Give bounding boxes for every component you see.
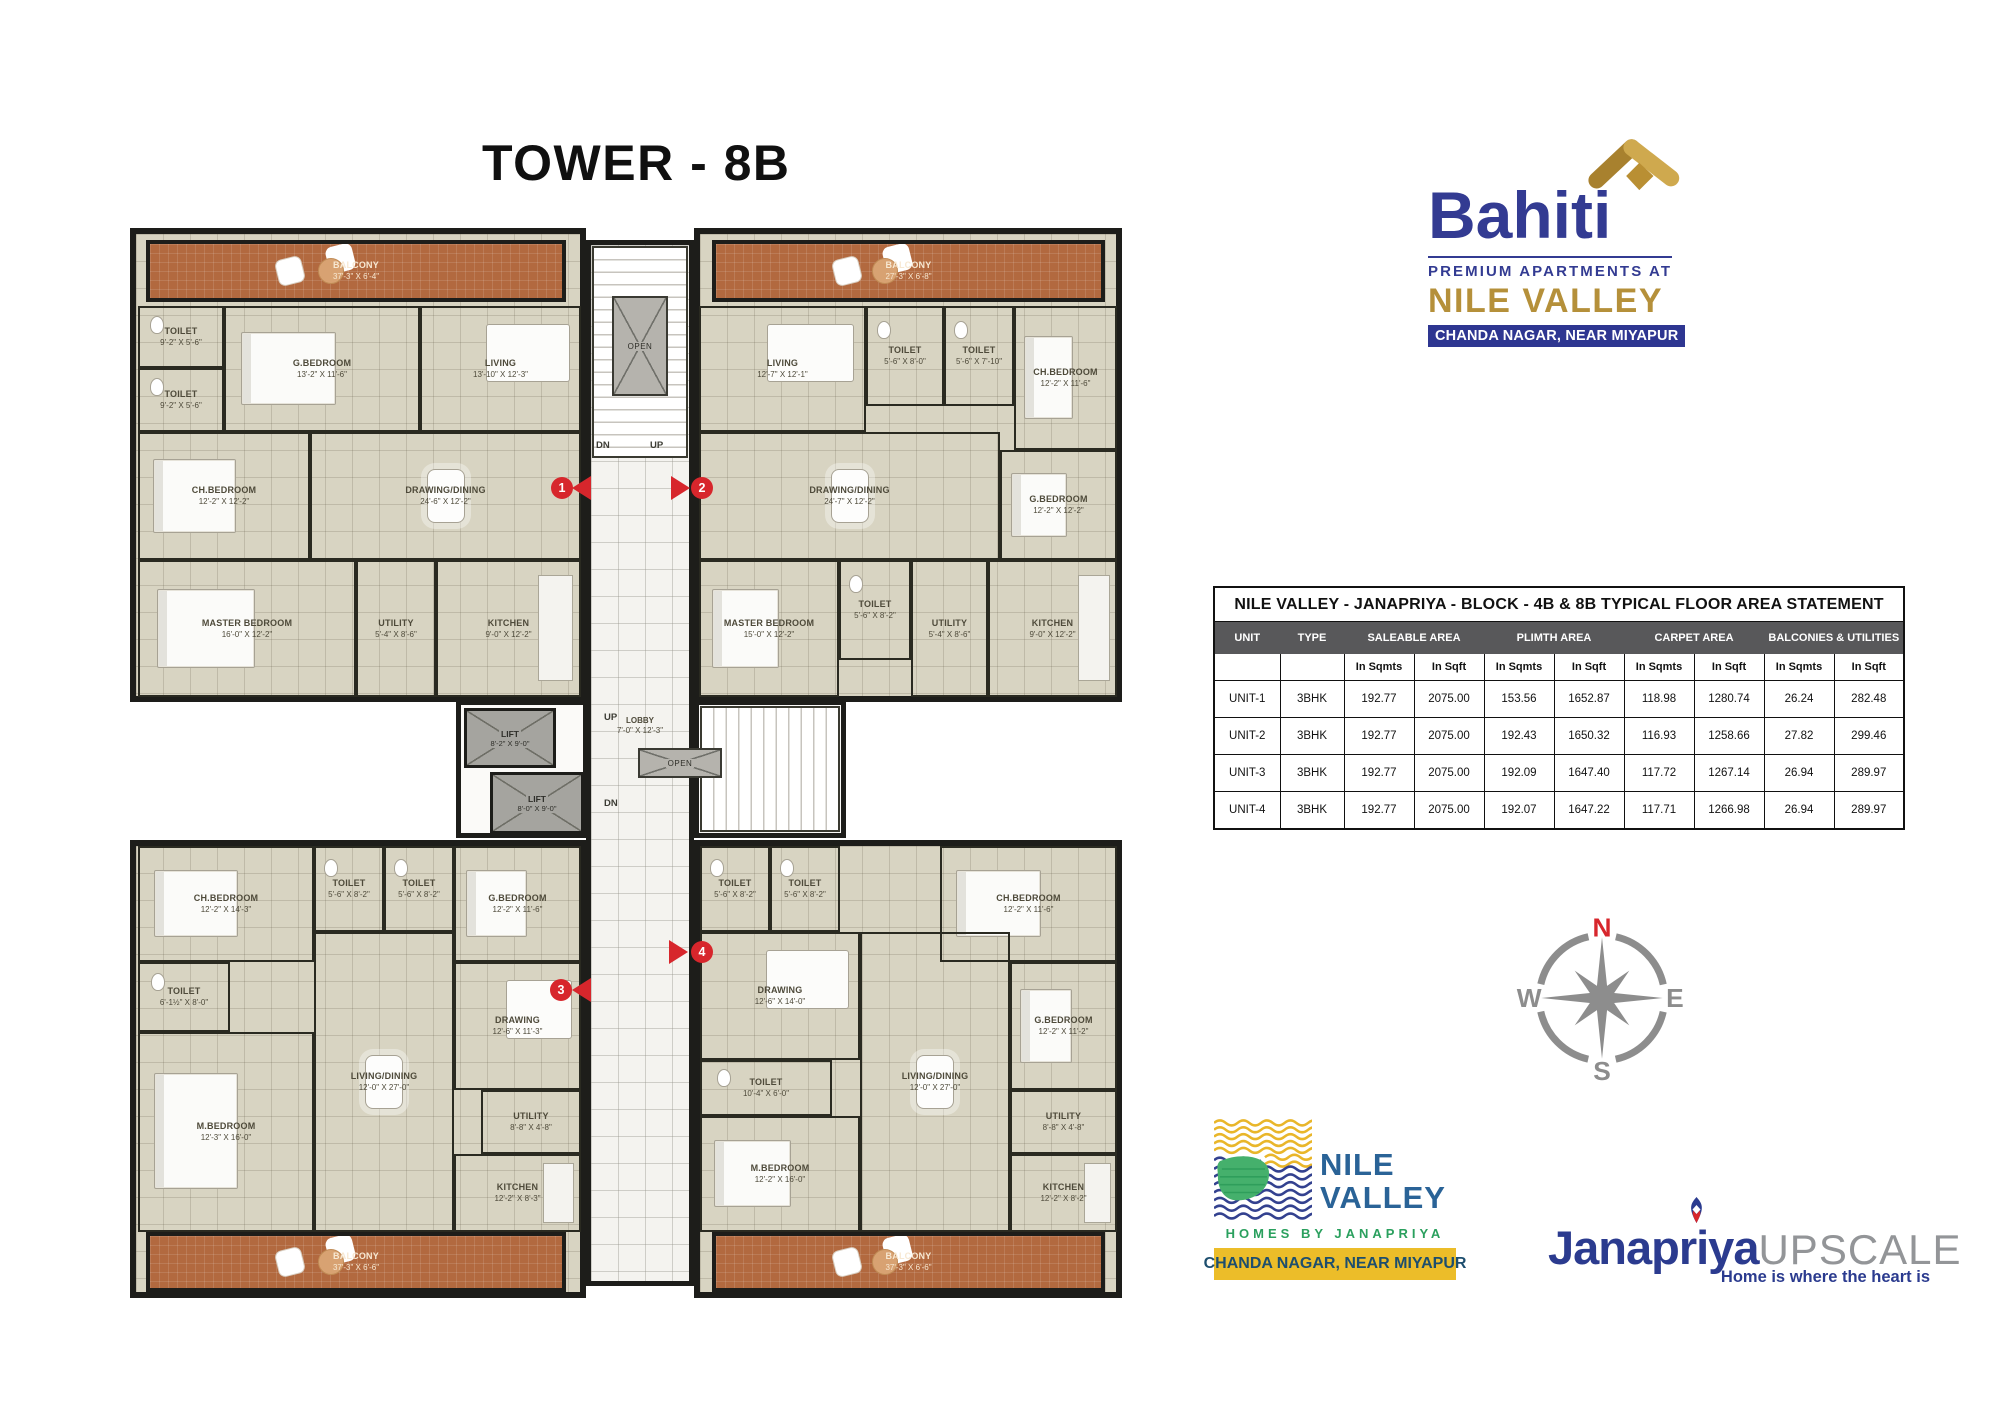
entry-marker-1: 1 (551, 477, 573, 499)
nile-valley-wordmark: NILE VALLEY (1320, 1148, 1446, 1215)
compass-rose-icon: N E S W (1516, 912, 1688, 1084)
lobby-name: LOBBY (586, 716, 694, 726)
col-header-type: TYPE (1280, 622, 1344, 654)
table-title: NILE VALLEY - JANAPRIYA - BLOCK - 4B & 8… (1214, 587, 1904, 622)
unit4-toilet-3: TOILET10'-4" X 6'-0" (700, 1060, 832, 1116)
cell: 1652.87 (1554, 681, 1624, 718)
cell-type: 3BHK (1280, 792, 1344, 830)
lift-label: LIFT (526, 794, 548, 804)
cell-type: 3BHK (1280, 755, 1344, 792)
unit3-kitchen: KITCHEN12'-2" X 8'-3" (454, 1154, 581, 1232)
stairs-dn-label: DN (596, 440, 610, 451)
table-row: UNIT-3 3BHK 192.77 2075.00 192.09 1647.4… (1214, 755, 1904, 792)
cell: 192.07 (1484, 792, 1554, 830)
cell: 153.56 (1484, 681, 1554, 718)
unit4-utility: UTILITY8'-8" X 4'-8" (1010, 1090, 1117, 1154)
unit3-living-dining: LIVING/DINING12'-0" X 27'-0" (314, 932, 454, 1232)
unit2-toilet-2: TOILET5'-6" X 7'-10" (944, 306, 1014, 406)
cell-unit: UNIT-1 (1214, 681, 1280, 718)
unit3-toilet-3: TOILET6'-1½" X 8'-0" (138, 962, 230, 1032)
subheader-sqmts: In Sqmts (1344, 654, 1414, 681)
unit2-drawing-dining: DRAWING/DINING24'-7" X 12'-2" (699, 432, 1000, 560)
cell: 26.94 (1764, 792, 1834, 830)
unit1-kitchen: KITCHEN9'-0" X 12'-2" (436, 560, 581, 697)
cell: 1650.32 (1554, 718, 1624, 755)
col-header-saleable: SALEABLE AREA (1344, 622, 1484, 654)
cell: 289.97 (1834, 792, 1904, 830)
unit4-living-dining: LIVING/DINING12'-0" X 27'-0" (860, 932, 1010, 1232)
unit3-g-bedroom: G.BEDROOM12'-2" X 11'-6" (454, 846, 581, 962)
unit2-balcony: BALCONY27'-3" X 6'-8" (712, 240, 1105, 302)
cell: 26.24 (1764, 681, 1834, 718)
open-label: OPEN (666, 759, 695, 768)
cell (1280, 654, 1344, 681)
subheader-sqmts: In Sqmts (1624, 654, 1694, 681)
upscale-label: UPSCALE (1758, 1226, 1961, 1273)
nile-valley-line2: VALLEY (1320, 1181, 1446, 1214)
table-row: UNIT-4 3BHK 192.77 2075.00 192.07 1647.2… (1214, 792, 1904, 830)
subheader-sqft: In Sqft (1834, 654, 1904, 681)
entry-arrow-3-icon (572, 978, 591, 1002)
janapriya-tagline: Home is where the heart is (1721, 1268, 1930, 1287)
divider (1428, 256, 1672, 258)
unit2-kitchen: KITCHEN9'-0" X 12'-2" (988, 560, 1117, 697)
compass-east-label: E (1666, 983, 1684, 1013)
entry-arrow-4-icon (669, 940, 688, 964)
cell: 1647.22 (1554, 792, 1624, 830)
unit1-toilet-1: TOILET9'-2" X 5'-6" (138, 306, 224, 368)
unit2-utility: UTILITY5'-4" X 8'-6" (911, 560, 988, 697)
unit4-toilet-1: TOILET5'-6" X 8'-2" (700, 846, 770, 932)
subheader-sqmts: In Sqmts (1764, 654, 1834, 681)
cell: 192.77 (1344, 755, 1414, 792)
cell: 192.77 (1344, 792, 1414, 830)
nile-valley-line1: NILE (1320, 1148, 1446, 1181)
lift-dims: 8'-0" X 9'-0" (515, 804, 558, 813)
unit1-living: LIVING13'-10" X 12'-3" (420, 306, 581, 432)
janapriya-wordmark: JanapriyaUPSCALE (1548, 1220, 1962, 1275)
cell: 116.93 (1624, 718, 1694, 755)
subheader-sqft: In Sqft (1414, 654, 1484, 681)
col-header-plimth: PLIMTH AREA (1484, 622, 1624, 654)
unit1-utility: UTILITY5'-4" X 8'-6" (356, 560, 436, 697)
unit2-ch-bedroom: CH.BEDROOM12'-2" X 11'-6" (1014, 306, 1117, 450)
unit4-m-bedroom: M.BEDROOM12'-2" X 16'-0" (700, 1116, 860, 1232)
unit2-master-bedroom: MASTER BEDROOM15'-0" X 12'-2" (699, 560, 839, 697)
entry-marker-4: 4 (691, 941, 713, 963)
cell: 117.72 (1624, 755, 1694, 792)
unit4-drawing: DRAWING12'-6" X 14'-0" (700, 932, 860, 1060)
gold-roof-icon (1580, 130, 1692, 200)
stairs-up-label: UP (650, 440, 663, 451)
bahiti-subtitle: PREMIUM APARTMENTS AT (1428, 263, 1674, 280)
bahiti-location-badge: CHANDA NAGAR, NEAR MIYAPUR (1428, 325, 1685, 347)
unit3-m-bedroom: M.BEDROOM12'-3" X 16'-0" (138, 1032, 314, 1232)
unit4-kitchen: KITCHEN12'-2" X 8'-2" (1010, 1154, 1117, 1232)
unit3-balcony: BALCONY37'-3" X 6'-6" (146, 1232, 566, 1292)
unit1-ch-bedroom: CH.BEDROOM12'-2" X 12'-2" (138, 432, 310, 560)
cell-type: 3BHK (1280, 681, 1344, 718)
unit4-toilet-2: TOILET5'-6" X 8'-2" (770, 846, 840, 932)
unit4-g-bedroom: G.BEDROOM12'-2" X 11'-2" (1010, 962, 1117, 1090)
cell: 192.43 (1484, 718, 1554, 755)
nile-valley-logo: NILE VALLEY HOMES BY JANAPRIYA CHANDA NA… (1214, 1118, 1456, 1225)
unit1-master-bedroom: MASTER BEDROOM16'-0" X 12'-2" (138, 560, 356, 697)
unit3-toilet-1: TOILET5'-6" X 8'-2" (314, 846, 384, 932)
cell: 1258.66 (1694, 718, 1764, 755)
cell-type: 3BHK (1280, 718, 1344, 755)
janapriya-name: Janapriya (1548, 1221, 1758, 1274)
subheader-sqft: In Sqft (1694, 654, 1764, 681)
cell: 2075.00 (1414, 718, 1484, 755)
entry-arrow-1-icon (572, 476, 591, 500)
table-header-row: UNIT TYPE SALEABLE AREA PLIMTH AREA CARP… (1214, 622, 1904, 654)
col-header-carpet: CARPET AREA (1624, 622, 1764, 654)
unit2-toilet-3: TOILET5'-6" X 8'-2" (839, 560, 911, 660)
lobby-dims: 7'-0" X 12'-3" (586, 726, 694, 736)
compass-south-label: S (1593, 1056, 1611, 1084)
cell: 1280.74 (1694, 681, 1764, 718)
unit3-utility: UTILITY8'-8" X 4'-8" (481, 1090, 581, 1154)
table-subheader-row: In Sqmts In Sqft In Sqmts In Sqft In Sqm… (1214, 654, 1904, 681)
lift-dims: 8'-2" X 9'-0" (488, 739, 531, 748)
unit1-g-bedroom: G.BEDROOM13'-2" X 11'-6" (224, 306, 420, 432)
cell: 1267.14 (1694, 755, 1764, 792)
cell: 1647.40 (1554, 755, 1624, 792)
cell: 118.98 (1624, 681, 1694, 718)
page: TOWER - 8B OPEN DN UP LIFT 8'-2" X 9'-0"… (0, 0, 2000, 1403)
stairs-dn-label: DN (604, 798, 618, 809)
stair-open-well-mid: OPEN (638, 748, 722, 778)
subheader-sqft: In Sqft (1554, 654, 1624, 681)
col-header-balconies: BALCONIES & UTILITIES (1764, 622, 1904, 654)
unit1-toilet-2: TOILET9'-2" X 5'-6" (138, 368, 224, 432)
cell: 2075.00 (1414, 681, 1484, 718)
cell: 2075.00 (1414, 792, 1484, 830)
unit1-drawing-dining: DRAWING/DINING24'-6" X 12'-2" (310, 432, 581, 560)
cell: 27.82 (1764, 718, 1834, 755)
nile-valley-location-banner: CHANDA NAGAR, NEAR MIYAPUR (1214, 1248, 1456, 1280)
cell: 26.94 (1764, 755, 1834, 792)
cell: 289.97 (1834, 755, 1904, 792)
unit3-toilet-2: TOILET5'-6" X 8'-2" (384, 846, 454, 932)
table-row: UNIT-2 3BHK 192.77 2075.00 192.43 1650.3… (1214, 718, 1904, 755)
lift-2: LIFT 8'-0" X 9'-0" (490, 772, 584, 834)
col-header-unit: UNIT (1214, 622, 1280, 654)
bahiti-project-name: NILE VALLEY (1428, 282, 1674, 321)
unit2-g-bedroom: G.BEDROOM12'-2" X 12'-2" (1000, 450, 1117, 560)
unit2-living: LIVING12'-7" X 12'-1" (699, 306, 866, 432)
open-label: OPEN (626, 342, 655, 351)
cell: 2075.00 (1414, 755, 1484, 792)
cell: 1266.98 (1694, 792, 1764, 830)
nile-valley-waves-icon (1214, 1118, 1312, 1220)
unit3-ch-bedroom: CH.BEDROOM12'-2" X 14'-3" (138, 846, 314, 962)
subheader-sqmts: In Sqmts (1484, 654, 1554, 681)
unit1-balcony: BALCONY37'-3" X 6'-4" (146, 240, 566, 302)
cell-unit: UNIT-2 (1214, 718, 1280, 755)
cell: 192.77 (1344, 681, 1414, 718)
cell (1214, 654, 1280, 681)
entry-marker-2: 2 (691, 477, 713, 499)
page-title: TOWER - 8B (482, 134, 791, 192)
table-title-row: NILE VALLEY - JANAPRIYA - BLOCK - 4B & 8… (1214, 587, 1904, 622)
lobby-label: LOBBY 7'-0" X 12'-3" (586, 716, 694, 736)
unit2-toilet-1: TOILET5'-6" X 8'-0" (866, 306, 944, 406)
stair-open-well-top: OPEN (612, 296, 668, 396)
lift-label: LIFT (499, 729, 521, 739)
entry-marker-3: 3 (550, 979, 572, 1001)
cell: 192.09 (1484, 755, 1554, 792)
table-row: UNIT-1 3BHK 192.77 2075.00 153.56 1652.8… (1214, 681, 1904, 718)
floor-area-table: NILE VALLEY - JANAPRIYA - BLOCK - 4B & 8… (1213, 586, 1905, 830)
cell-unit: UNIT-4 (1214, 792, 1280, 830)
cell: 282.48 (1834, 681, 1904, 718)
cell: 117.71 (1624, 792, 1694, 830)
unit4-balcony: BALCONY37'-3" X 6'-6" (712, 1232, 1105, 1292)
bahiti-logo: Bahiti PREMIUM APARTMENTS AT NILE VALLEY… (1428, 130, 1674, 347)
janapriya-upscale-logo: JanapriyaUPSCALE Home is where the heart… (1548, 1196, 1938, 1296)
entry-arrow-2-icon (671, 476, 690, 500)
cell-unit: UNIT-3 (1214, 755, 1280, 792)
homes-by-janapriya-label: HOMES BY JANAPRIYA (1214, 1226, 1456, 1241)
cell: 192.77 (1344, 718, 1414, 755)
lift-1: LIFT 8'-2" X 9'-0" (464, 708, 556, 768)
compass-west-label: W (1517, 983, 1542, 1013)
compass-north-label: N (1593, 912, 1612, 942)
cell: 299.46 (1834, 718, 1904, 755)
